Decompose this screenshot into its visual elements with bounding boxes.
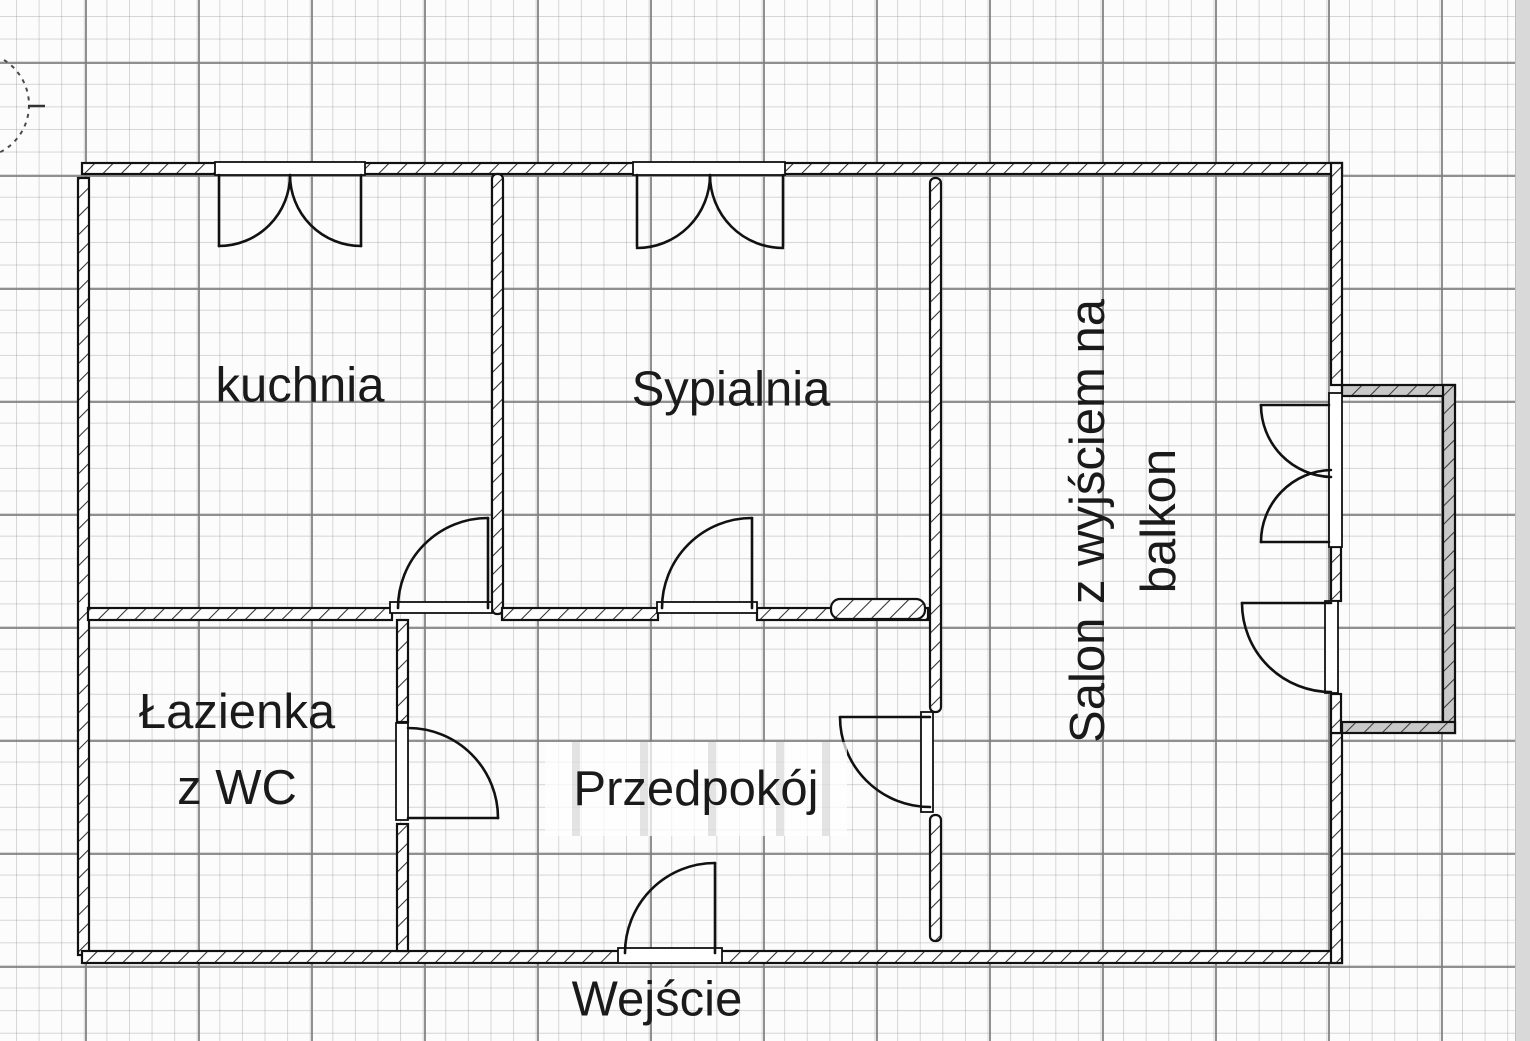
room-label-living-room: Salon z wyjściem na balkon [1053,299,1195,743]
wall-right-upper [1331,163,1342,385]
balcony-wall-right [1443,385,1455,733]
wall-h-bedroom-hallway [502,608,658,620]
door-swing-arc [398,518,488,608]
balcony-wall-bottom [1342,722,1455,733]
window-kitchen [215,162,365,246]
wall-right-lower [1331,733,1342,963]
page-edge-strip [1515,0,1530,1041]
entrance-label: Wejście [572,971,743,1030]
door-bedroom [657,518,757,613]
door-entrance [618,863,722,963]
door-threshold [618,948,722,963]
room-label-living-room-line2: balkon [1124,299,1195,743]
door-balcony [1242,601,1338,693]
window-swing-arc [290,175,361,246]
room-label-hallway-box: Przedpokój [545,742,847,836]
room-label-bathroom: Łazienka z WC [139,675,335,827]
window-swing-arc [1261,405,1331,477]
room-label-hallway: Przedpokój [573,761,818,817]
balcony-wall-top [1342,385,1455,396]
balcony [1342,385,1455,733]
window-sill [633,162,785,175]
wall-bathroom-hallway-lower [397,824,408,951]
wall-h-end-bulge [831,599,925,619]
door-kitchen [390,518,492,613]
room-label-bedroom: Sypialnia [632,361,831,420]
room-label-kitchen: kuchnia [216,357,385,416]
door-swing-arc [408,728,498,818]
wall-living-balcony-mid [1331,547,1341,601]
door-leaf-closed [921,712,933,812]
window-swing-arc [637,175,710,248]
door-swing-arc [840,717,930,807]
window-swing-arc [219,175,290,246]
wall-bedroom-living [930,178,941,712]
door-swing-arc [662,518,752,608]
room-label-bathroom-line1: Łazienka [139,675,335,751]
door-threshold [657,602,757,613]
window-bedroom [633,162,785,248]
door-bathroom [396,723,498,820]
door-living-room [840,712,933,812]
door-leaf-closed [396,723,408,820]
door-swing-arc [1242,603,1331,692]
wall-kitchen-bedroom [492,174,503,614]
room-label-bathroom-line2: z WC [139,751,335,827]
guide-circle-artifact [0,52,45,158]
door-swing-arc [625,863,715,953]
wall-hallway-living-lower [930,815,941,941]
wall-living-balcony-lower [1331,694,1341,733]
window-sill [215,162,365,175]
wall-h-kitchen-bathroom [88,608,392,620]
window-swing-arc [1261,470,1331,542]
door-threshold [390,602,492,613]
room-label-living-room-line1: Salon z wyjściem na [1053,299,1124,743]
window-balcony [1261,393,1342,547]
floor-plan-drawing [0,0,1530,1041]
door-leaf-closed [1325,601,1338,693]
wall-left [78,178,89,955]
label-highlight-bar [822,742,830,836]
floor-plan-canvas: kuchnia Sypialnia Łazienka z WC Przedpok… [0,0,1530,1041]
window-swing-arc [710,175,783,248]
wall-bathroom-hallway-upper [397,620,408,722]
